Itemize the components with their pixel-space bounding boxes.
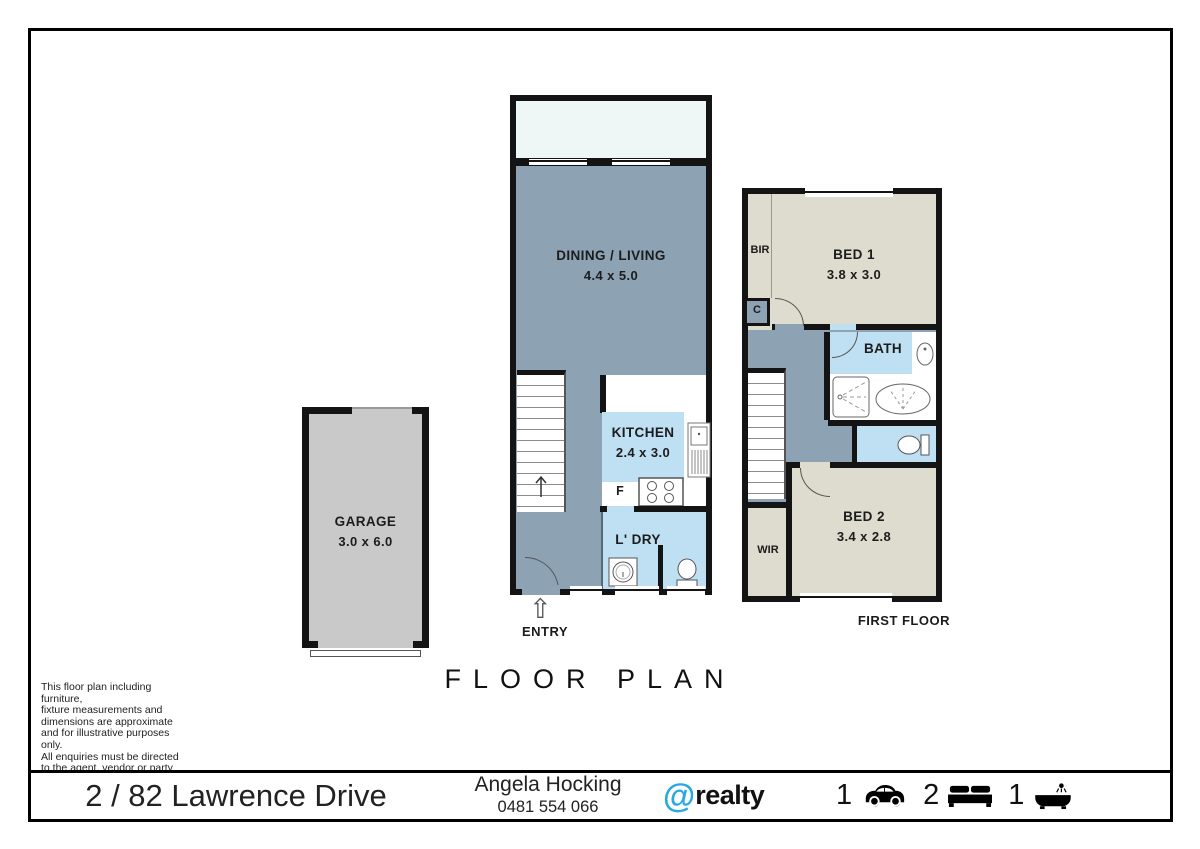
bed1-label: BED 1 3.8 x 3.0	[772, 246, 936, 283]
sliding-door-panel	[612, 159, 670, 165]
window	[805, 188, 893, 197]
garage-opening-line	[352, 407, 412, 409]
room-name: BED 1	[772, 246, 936, 263]
garage-label: GARAGE 3.0 x 6.0	[302, 513, 429, 550]
room-dims: 3.4 x 2.8	[792, 528, 936, 545]
room-dims: 3.0 x 6.0	[302, 533, 429, 550]
bath-count: 1	[1008, 779, 1024, 812]
toilet-icon	[896, 432, 932, 458]
stairs-first	[748, 368, 786, 499]
realty-logo: @realty	[663, 779, 764, 812]
agent-info: Angela Hocking 0481 554 066	[438, 774, 658, 818]
bath-wall-left	[824, 332, 830, 420]
kitchen-wall-stub	[600, 375, 606, 413]
wc-wall-stub	[658, 545, 663, 589]
garage-wall-top	[412, 407, 429, 414]
garage-door	[310, 650, 421, 657]
room-dims: 4.4 x 5.0	[516, 267, 706, 284]
window	[570, 586, 602, 595]
cupboard-label: C	[747, 304, 767, 316]
bed-count: 2	[923, 779, 939, 812]
stairs-up-arrow-icon	[534, 473, 548, 499]
window	[800, 593, 892, 602]
first-floor-plan: BIR BED 1 3.8 x 3.0 C BATH	[742, 188, 942, 602]
bath-door-opening	[830, 324, 856, 330]
laundry-left-line	[601, 512, 603, 589]
room-name: DINING / LIVING	[516, 247, 706, 264]
sliding-door-panel	[529, 159, 587, 165]
balcony-area	[516, 101, 706, 158]
kitchen-label: KITCHEN 2.4 x 3.0	[602, 424, 684, 461]
agent-name: Angela Hocking	[438, 774, 658, 796]
entry-opening	[522, 585, 560, 595]
room-name: KITCHEN	[602, 424, 684, 441]
bath-icon	[1033, 782, 1073, 810]
room-name: BED 2	[792, 508, 936, 525]
room-name: GARAGE	[302, 513, 429, 530]
car-count: 1	[836, 779, 852, 812]
window	[667, 586, 705, 595]
room-cupboard: C	[744, 298, 770, 326]
entry-label: ENTRY	[505, 624, 585, 639]
car-icon	[861, 783, 907, 808]
garage-wall-bottom	[302, 641, 318, 648]
room-dims: 2.4 x 3.0	[602, 444, 684, 461]
garage-plan: GARAGE 3.0 x 6.0	[302, 407, 429, 648]
floor-plan-image: DINING / LIVING 4.4 x 5.0 KITCHEN 2.4 x …	[0, 0, 1200, 849]
bed-stat: 2	[923, 779, 992, 812]
property-address: 2 / 82 Lawrence Drive	[71, 778, 401, 814]
bed-icon	[948, 783, 992, 808]
first-floor-caption: FIRST FLOOR	[800, 613, 950, 628]
garage-wall-top	[302, 407, 352, 414]
room-dims: 3.8 x 3.0	[772, 266, 936, 283]
footer-bar: 2 / 82 Lawrence Drive Angela Hocking 048…	[28, 770, 1173, 822]
shower-icon	[832, 376, 870, 418]
agent-phone: 0481 554 066	[438, 796, 658, 818]
bir-label: BIR	[746, 244, 774, 256]
brand-name: realty	[695, 780, 764, 811]
bath-stat: 1	[1008, 779, 1073, 812]
property-stats: 1 2 1	[836, 779, 1073, 812]
brand-at-icon: @	[663, 779, 695, 812]
kitchen-sink-icon	[687, 422, 711, 478]
basin-icon	[915, 340, 935, 368]
laundry-label: L' DRY	[602, 531, 674, 548]
entry-arrow-icon: ⇧	[529, 596, 552, 623]
window	[615, 586, 659, 595]
wir-label: WIR	[748, 544, 788, 556]
bathtub-icon	[874, 382, 932, 416]
car-stat: 1	[836, 779, 907, 812]
toilet-icon	[672, 557, 702, 589]
ground-floor-plan: DINING / LIVING 4.4 x 5.0 KITCHEN 2.4 x …	[510, 95, 712, 595]
wc-wall-stub	[852, 426, 857, 462]
bath-label: BATH	[848, 340, 918, 357]
room-dining-living: DINING / LIVING 4.4 x 5.0	[516, 247, 706, 284]
stove-icon	[638, 477, 684, 507]
fridge-label: F	[612, 484, 628, 498]
page-title: FLOOR PLAN	[410, 664, 770, 695]
washing-machine-icon	[608, 557, 638, 587]
bed2-label: BED 2 3.4 x 2.8	[792, 508, 936, 545]
garage-wall-bottom	[413, 641, 429, 648]
